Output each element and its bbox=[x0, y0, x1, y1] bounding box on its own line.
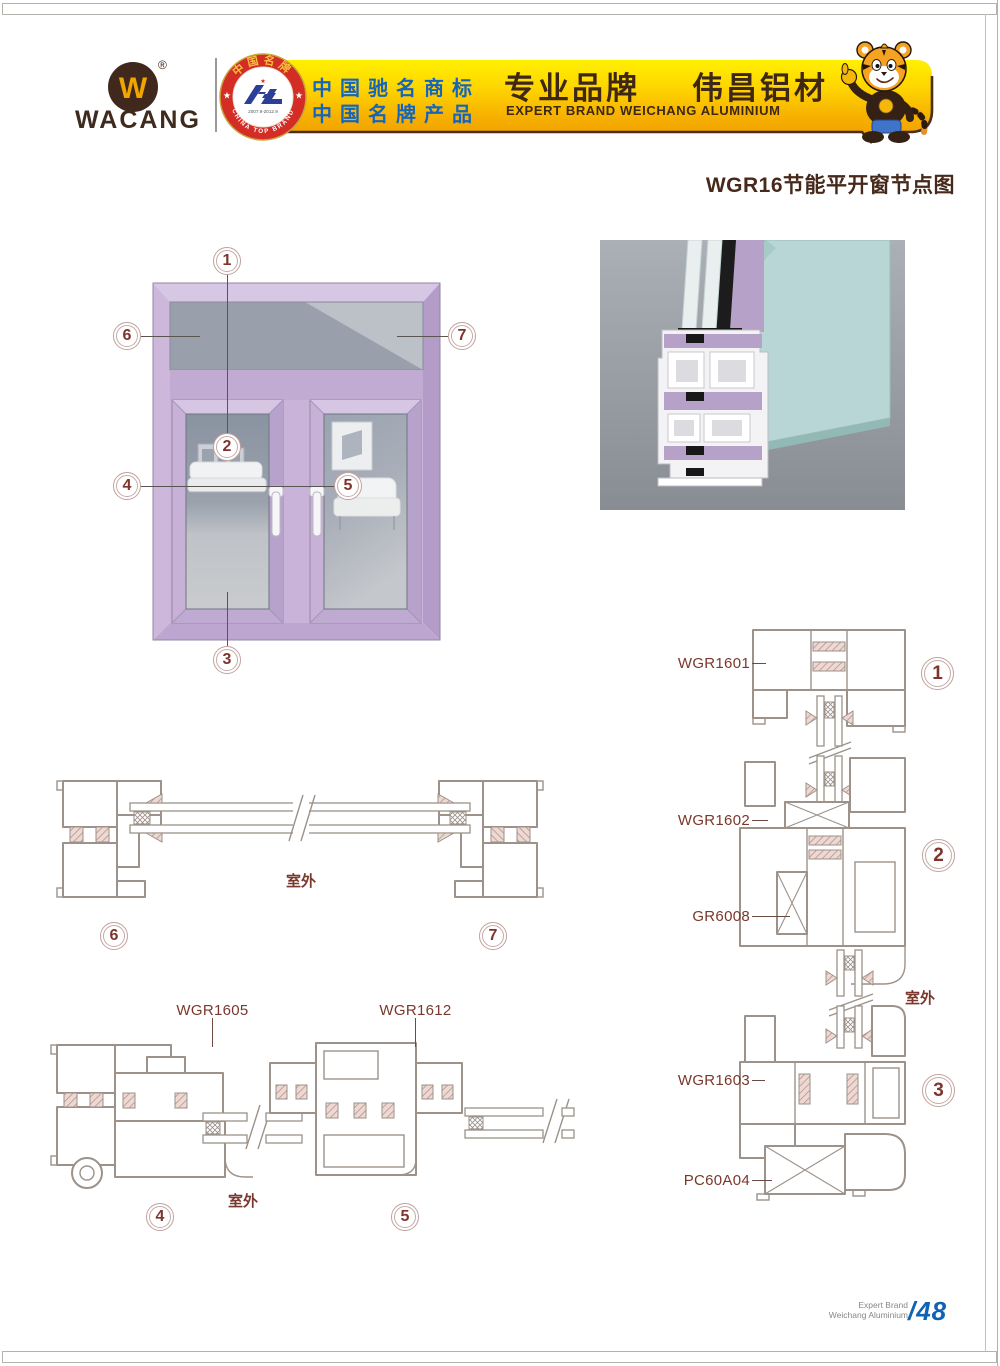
callout-4: 4 bbox=[113, 472, 141, 500]
callout-line-6 bbox=[141, 336, 200, 337]
section-3-sill bbox=[740, 1006, 905, 1200]
brand-cn: 伟昌铝材 bbox=[692, 63, 828, 108]
registered-mark: ® bbox=[158, 58, 167, 72]
label-wgr1601: WGR1601 bbox=[650, 655, 750, 672]
footer-brand: Expert Brand Weichang Aluminium bbox=[690, 1301, 908, 1320]
window-elevation-drawing bbox=[110, 240, 490, 680]
leader-wgr1612 bbox=[415, 1018, 416, 1047]
badge-years: 2007.9-2012.9 bbox=[248, 109, 278, 114]
outdoor-label-casement: 室外 bbox=[228, 1190, 258, 1211]
section-1-head bbox=[753, 630, 905, 764]
callout-line-7 bbox=[397, 336, 448, 337]
callout-1: 1 bbox=[213, 247, 241, 275]
section-callout-3: 3 bbox=[922, 1074, 955, 1107]
section-5-profile bbox=[270, 1043, 462, 1175]
profile-3d-render bbox=[600, 240, 905, 510]
wacang-logo-w: W bbox=[119, 72, 148, 105]
callout-6: 6 bbox=[113, 322, 141, 350]
leader-gr6008 bbox=[752, 916, 790, 917]
header: W ® WACANG 中国名牌 CHINA TOP BRAND bbox=[0, 0, 1000, 160]
banner-cn-line2: 中国名牌产品 bbox=[312, 98, 480, 127]
right-inner-border bbox=[985, 14, 986, 1351]
banner-slogan-en: EXPERT BRAND WEICHANG ALUMINIUM bbox=[506, 103, 781, 118]
casement-horizontal-sections bbox=[45, 1035, 695, 1205]
page-title: WGR16节能平开窗节点图 bbox=[600, 169, 955, 199]
label-gr6008: GR6008 bbox=[650, 908, 750, 925]
banner-cn-line1: 中国驰名商标 bbox=[312, 72, 480, 101]
outdoor-label-right: 室外 bbox=[905, 987, 935, 1008]
callout-line-4-5 bbox=[141, 486, 334, 487]
leader-wgr1603 bbox=[752, 1080, 765, 1081]
footer-brand-line2: Weichang Aluminium bbox=[690, 1311, 908, 1321]
label-wgr1605: WGR1605 bbox=[170, 1002, 255, 1019]
section-callout-1: 1 bbox=[921, 657, 954, 690]
brand-name: WACANG bbox=[64, 106, 212, 135]
china-top-brand-badge: 中国名牌 CHINA TOP BRAND 2007.9-2012.9 bbox=[218, 52, 310, 144]
callout-line-1 bbox=[227, 275, 228, 433]
label-wgr1602: WGR1602 bbox=[650, 812, 750, 829]
section-callout-6: 6 bbox=[100, 922, 128, 950]
slogan-cn: 专业品牌 bbox=[504, 63, 640, 108]
header-divider bbox=[215, 58, 217, 132]
leader-wgr1602 bbox=[752, 820, 768, 821]
leader-wgr1605 bbox=[212, 1018, 213, 1047]
callout-3: 3 bbox=[213, 646, 241, 674]
left-jamb bbox=[57, 781, 161, 897]
banner-slogan: 专业品牌 伟昌铝材 bbox=[504, 63, 828, 108]
outdoor-label-transom: 室外 bbox=[286, 870, 316, 891]
section-callout-2: 2 bbox=[922, 839, 955, 872]
right-sash bbox=[310, 400, 421, 623]
callout-2: 2 bbox=[213, 433, 241, 461]
callout-5: 5 bbox=[334, 472, 362, 500]
leader-wgr1601 bbox=[752, 663, 766, 664]
bottom-border-band bbox=[2, 1351, 997, 1363]
section-callout-4: 4 bbox=[146, 1203, 174, 1231]
callout-7: 7 bbox=[448, 322, 476, 350]
section-2-transom bbox=[740, 756, 905, 1016]
glass-unit-5 bbox=[465, 1099, 574, 1147]
right-jamb bbox=[439, 781, 543, 897]
section-callout-5: 5 bbox=[391, 1203, 419, 1231]
vertical-sections-drawing bbox=[733, 622, 918, 1222]
section-callout-7: 7 bbox=[479, 922, 507, 950]
callout-line-3 bbox=[227, 592, 228, 646]
footer-page-number: /48 bbox=[908, 1296, 947, 1327]
right-outer-border bbox=[997, 0, 998, 1366]
tiger-mascot-icon bbox=[832, 36, 944, 144]
glass-unit bbox=[130, 794, 470, 842]
catalog-page: W ® WACANG 中国名牌 CHINA TOP BRAND bbox=[0, 0, 1000, 1366]
leader-pc60a04 bbox=[752, 1180, 772, 1181]
label-wgr1612: WGR1612 bbox=[373, 1002, 458, 1019]
